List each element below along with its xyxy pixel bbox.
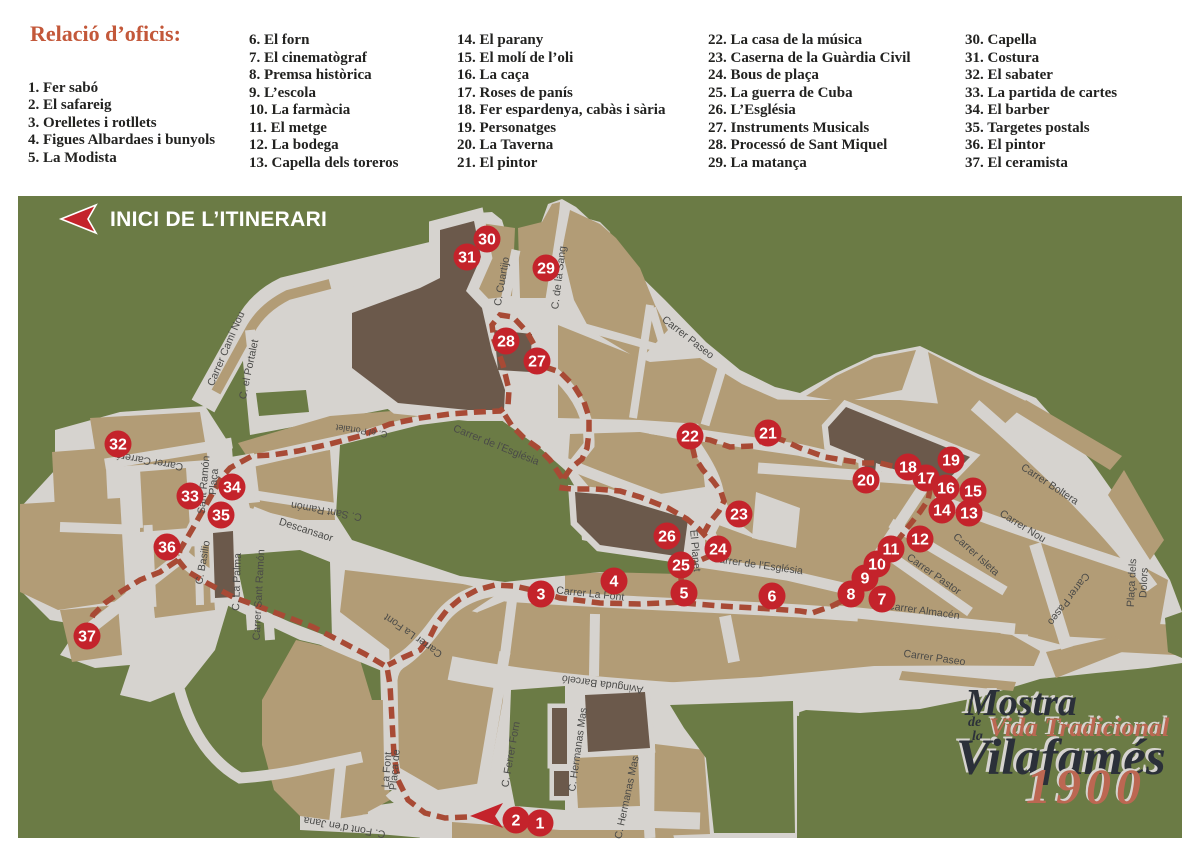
svg-text:35. Targetes postals: 35. Targetes postals [965,120,1090,136]
svg-text:1900: 1900 [1026,758,1146,814]
svg-text:17. Roses de panís: 17. Roses de panís [457,85,573,101]
svg-text:29: 29 [537,261,555,278]
svg-text:31: 31 [458,250,476,267]
svg-text:22: 22 [681,429,699,446]
svg-text:15. El molí de l’oli: 15. El molí de l’oli [457,50,573,66]
svg-text:2. El safareig: 2. El safareig [28,97,112,113]
svg-text:33. La partida de cartes: 33. La partida de cartes [965,85,1117,101]
svg-text:Plaça: Plaça [207,468,221,495]
svg-text:37: 37 [78,629,96,646]
svg-text:19: 19 [942,453,960,470]
svg-text:26. L’Església: 26. L’Església [708,102,796,118]
svg-text:Dolors: Dolors [1137,567,1151,598]
svg-text:31. Costura: 31. Costura [965,50,1040,66]
svg-text:13. Capella dels toreros: 13. Capella dels toreros [249,155,399,171]
svg-text:13: 13 [960,506,978,523]
svg-text:6: 6 [768,589,777,606]
svg-text:8: 8 [847,587,856,604]
svg-text:21: 21 [759,426,777,443]
svg-text:INICI DE L’ITINERARI: INICI DE L’ITINERARI [110,208,327,231]
svg-text:27: 27 [528,354,546,371]
svg-text:4: 4 [610,574,619,591]
svg-text:30. Capella: 30. Capella [965,32,1037,48]
svg-text:21. El pintor: 21. El pintor [457,155,538,171]
svg-text:2: 2 [512,813,521,830]
svg-text:34. El barber: 34. El barber [965,102,1050,118]
svg-text:7. El cinematògraf: 7. El cinematògraf [249,50,368,66]
svg-text:5: 5 [680,586,689,603]
svg-text:30: 30 [478,232,496,249]
svg-text:32: 32 [109,437,127,454]
svg-text:3: 3 [537,587,546,604]
svg-text:15: 15 [964,484,982,501]
svg-text:7: 7 [878,592,887,609]
svg-text:26: 26 [658,529,676,546]
svg-text:6. El forn: 6. El forn [249,32,310,48]
svg-text:8. Premsa històrica: 8. Premsa històrica [249,67,372,83]
svg-text:25: 25 [672,558,690,575]
svg-text:23: 23 [730,507,748,524]
svg-text:27. Instruments Musicals: 27. Instruments Musicals [708,120,869,136]
svg-text:16: 16 [937,481,955,498]
svg-text:14. El parany: 14. El parany [457,32,544,48]
svg-text:35: 35 [212,508,230,525]
svg-text:32. El sabater: 32. El sabater [965,67,1053,83]
svg-text:4. Figues Albardaes i bunyols: 4. Figues Albardaes i bunyols [28,132,215,148]
svg-text:24. Bous de plaça: 24. Bous de plaça [708,67,819,83]
svg-text:18: 18 [899,460,917,477]
svg-text:12: 12 [911,532,929,549]
svg-text:25. La guerra de Cuba: 25. La guerra de Cuba [708,85,853,101]
svg-text:20: 20 [857,473,875,490]
svg-text:18. Fer espardenya, cabàs i sà: 18. Fer espardenya, cabàs i sària [457,102,666,118]
svg-text:23. Caserna de la Guàrdia Civi: 23. Caserna de la Guàrdia Civil [708,50,911,66]
svg-text:5. La Modista: 5. La Modista [28,150,117,166]
svg-text:16. La caça: 16. La caça [457,67,530,83]
svg-text:28: 28 [497,334,515,351]
svg-text:34: 34 [223,480,241,497]
svg-text:10. La farmàcia: 10. La farmàcia [249,102,351,118]
svg-text:11: 11 [883,542,900,559]
svg-text:1: 1 [536,816,545,833]
svg-text:37. El ceramista: 37. El ceramista [965,155,1068,171]
svg-text:1. Fer sabó: 1. Fer sabó [28,80,98,96]
svg-text:14: 14 [933,503,951,520]
svg-text:36. El pintor: 36. El pintor [965,137,1046,153]
svg-text:28. Processó de Sant Miquel: 28. Processó de Sant Miquel [708,137,887,153]
svg-text:11. El metge: 11. El metge [249,120,327,136]
svg-text:Relació d’oficis:: Relació d’oficis: [30,21,181,46]
svg-text:24: 24 [709,542,727,559]
svg-text:19. Personatges: 19. Personatges [457,120,556,136]
svg-text:9. L’escola: 9. L’escola [249,85,316,101]
svg-text:3. Orelletes i rotllets: 3. Orelletes i rotllets [28,115,157,131]
svg-text:33: 33 [181,489,199,506]
svg-text:22. La casa de la música: 22. La casa de la música [708,32,863,48]
svg-text:20. La Taverna: 20. La Taverna [457,137,554,153]
svg-text:36: 36 [158,540,176,557]
svg-text:29. La matança: 29. La matança [708,155,807,171]
svg-text:C. La Palma: C. La Palma [230,553,244,611]
svg-text:12. La bodega: 12. La bodega [249,137,339,153]
